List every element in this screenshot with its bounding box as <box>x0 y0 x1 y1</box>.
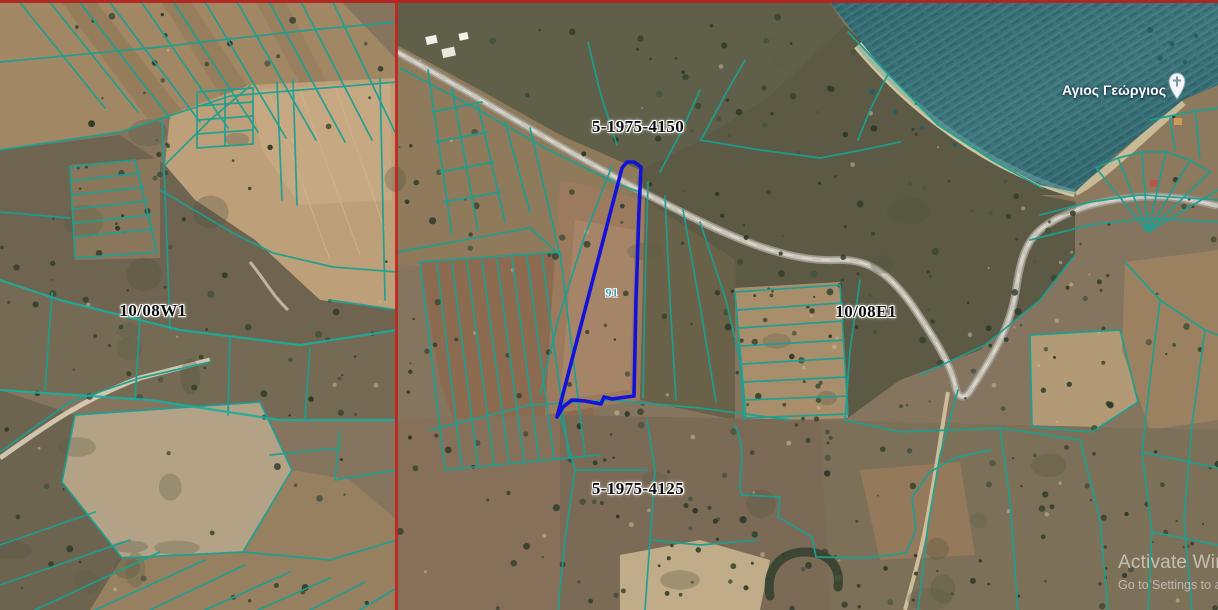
selected-parcel-layer <box>0 0 1218 610</box>
map-canvas[interactable]: 5-1975-4150 5-1975-4125 10/08W1 10/08E1 … <box>0 0 1218 610</box>
selected-parcel-outline[interactable] <box>557 162 641 417</box>
church-pin-icon[interactable] <box>1168 72 1186 100</box>
